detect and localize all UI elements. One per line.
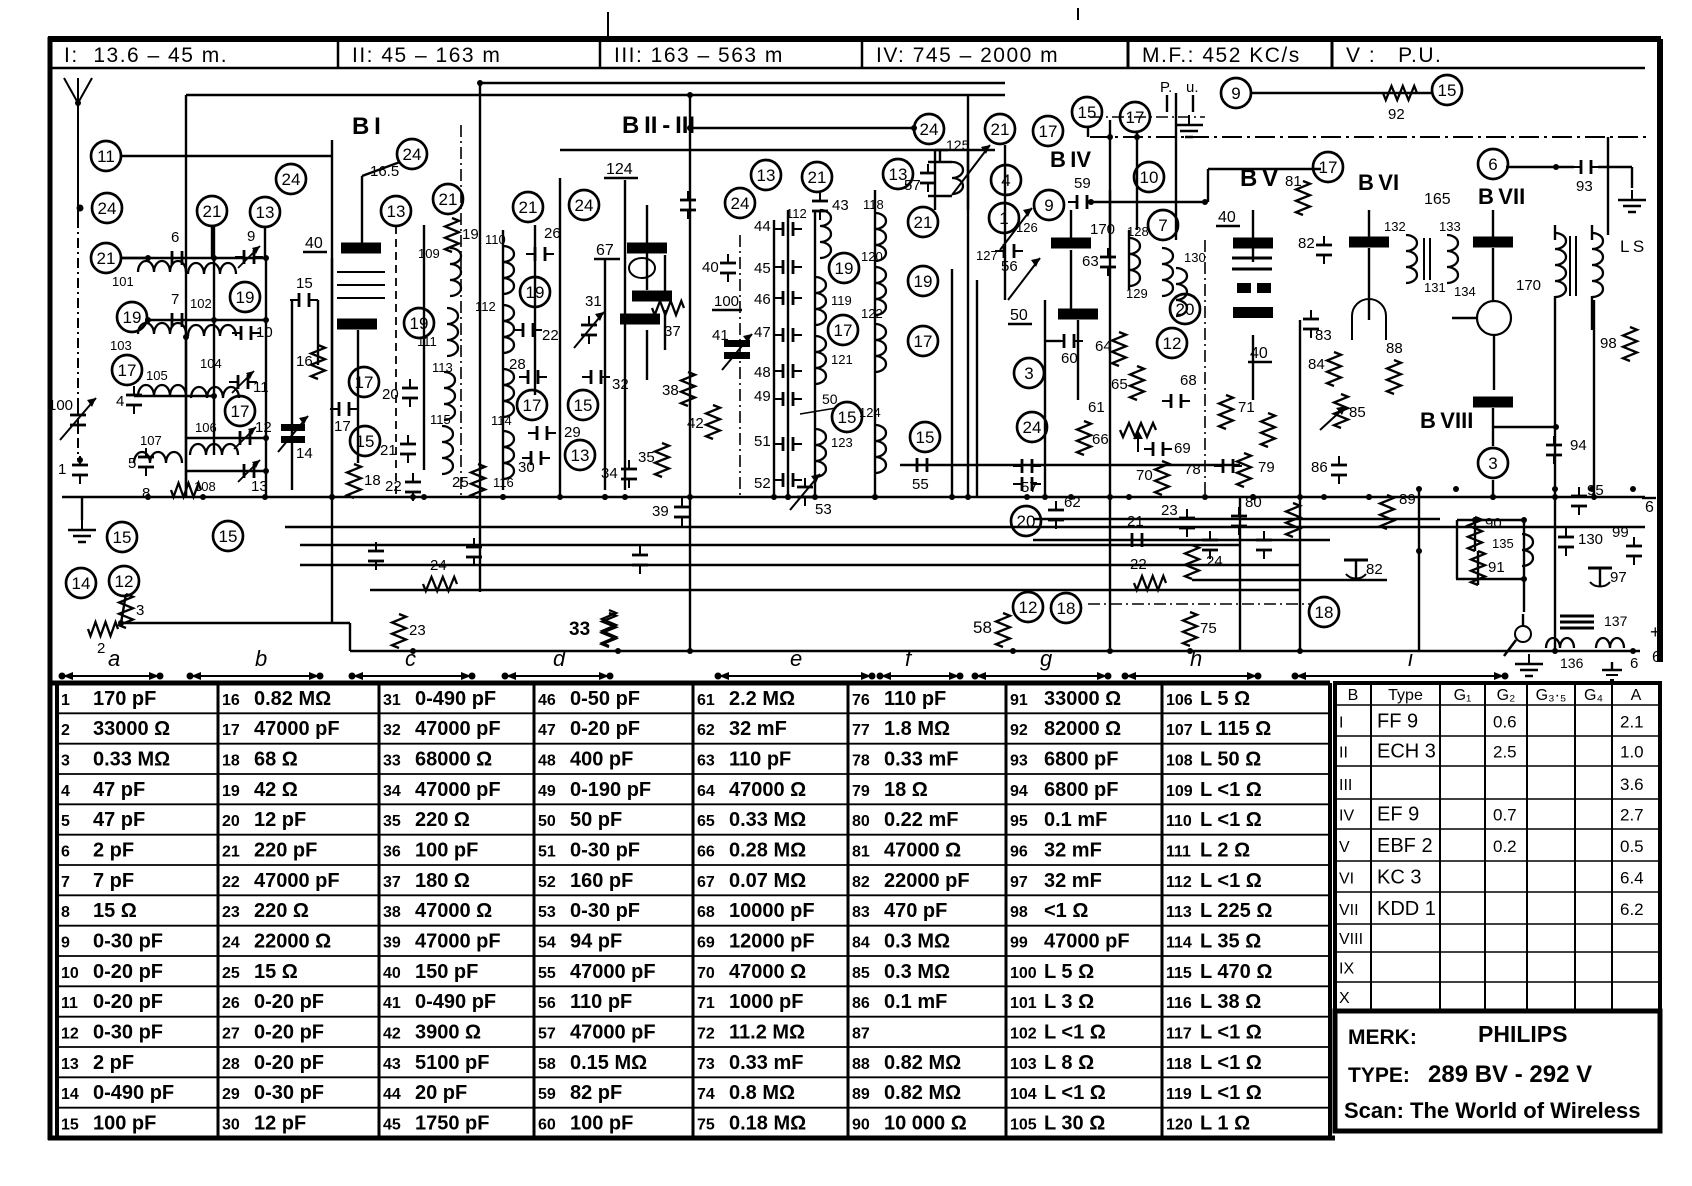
svg-text:84: 84 bbox=[1308, 356, 1325, 373]
svg-text:58: 58 bbox=[973, 618, 992, 637]
svg-text:132: 132 bbox=[1384, 219, 1406, 234]
svg-text:VIII: VIII bbox=[1339, 931, 1363, 948]
svg-text:65: 65 bbox=[697, 813, 715, 830]
svg-text:15: 15 bbox=[574, 396, 593, 415]
svg-text:0.3 MΩ: 0.3 MΩ bbox=[884, 961, 950, 983]
svg-text:48: 48 bbox=[754, 364, 771, 381]
svg-text:18: 18 bbox=[364, 472, 381, 489]
svg-text:V: V bbox=[1339, 839, 1350, 856]
svg-text:19: 19 bbox=[222, 783, 240, 800]
svg-text:33000 Ω: 33000 Ω bbox=[1044, 688, 1121, 710]
svg-text:38: 38 bbox=[383, 904, 401, 921]
svg-text:26: 26 bbox=[222, 995, 240, 1012]
svg-text:L 2 Ω: L 2 Ω bbox=[1200, 840, 1250, 862]
svg-text:101: 101 bbox=[1010, 995, 1037, 1012]
svg-text:6: 6 bbox=[61, 844, 70, 861]
svg-text:47000 pF: 47000 pF bbox=[1044, 931, 1130, 953]
svg-text:47000 Ω: 47000 Ω bbox=[415, 900, 492, 922]
svg-text:90: 90 bbox=[1485, 515, 1502, 532]
svg-text:22: 22 bbox=[1130, 556, 1147, 573]
svg-text:180 Ω: 180 Ω bbox=[415, 870, 470, 892]
svg-text:24: 24 bbox=[282, 170, 301, 189]
svg-text:76: 76 bbox=[852, 692, 870, 709]
svg-text:85: 85 bbox=[852, 965, 870, 982]
svg-text:0.33 MΩ: 0.33 MΩ bbox=[729, 809, 806, 831]
svg-text:99: 99 bbox=[1010, 935, 1028, 952]
svg-text:20: 20 bbox=[1017, 512, 1036, 531]
svg-text:0-20 pF: 0-20 pF bbox=[254, 1022, 324, 1044]
svg-text:24: 24 bbox=[430, 557, 447, 574]
svg-text:18: 18 bbox=[1315, 603, 1334, 622]
svg-text:45: 45 bbox=[383, 1117, 401, 1134]
svg-text:87: 87 bbox=[852, 1026, 870, 1043]
svg-text:3: 3 bbox=[136, 602, 144, 619]
svg-text:33: 33 bbox=[383, 753, 401, 770]
svg-text:65: 65 bbox=[1111, 376, 1128, 393]
svg-text:III: III bbox=[1339, 777, 1352, 794]
svg-text:11: 11 bbox=[97, 147, 115, 166]
svg-text:13: 13 bbox=[61, 1056, 79, 1073]
svg-text:B: B bbox=[1348, 687, 1359, 704]
svg-text:4: 4 bbox=[116, 393, 124, 410]
svg-text:TYPE:: TYPE: bbox=[1348, 1064, 1410, 1087]
svg-text:47000 pF: 47000 pF bbox=[570, 1022, 656, 1044]
svg-text:III: 163 – 563 m: III: 163 – 563 m bbox=[614, 44, 784, 67]
svg-text:47000 pF: 47000 pF bbox=[254, 718, 340, 740]
svg-text:110 pF: 110 pF bbox=[884, 688, 946, 710]
svg-text:0-50 pF: 0-50 pF bbox=[570, 688, 640, 710]
svg-text:71: 71 bbox=[697, 995, 715, 1012]
svg-text:7: 7 bbox=[61, 874, 70, 891]
svg-text:+: + bbox=[1650, 622, 1661, 642]
svg-text:57: 57 bbox=[538, 1026, 556, 1043]
svg-text:29: 29 bbox=[564, 424, 581, 441]
svg-text:54: 54 bbox=[538, 935, 556, 952]
svg-text:9: 9 bbox=[1231, 84, 1240, 103]
svg-text:86: 86 bbox=[1311, 459, 1328, 476]
svg-text:118: 118 bbox=[863, 197, 884, 212]
svg-text:130: 130 bbox=[1578, 531, 1603, 548]
svg-text:21: 21 bbox=[222, 844, 240, 861]
svg-text:17: 17 bbox=[1319, 158, 1338, 177]
svg-text:24: 24 bbox=[222, 935, 240, 952]
svg-text:17: 17 bbox=[222, 722, 240, 739]
svg-text:L <1 Ω: L <1 Ω bbox=[1044, 1022, 1106, 1044]
svg-text:85: 85 bbox=[1349, 404, 1366, 421]
svg-text:289 BV - 292 V: 289 BV - 292 V bbox=[1428, 1061, 1592, 1088]
svg-text:31: 31 bbox=[585, 293, 602, 310]
svg-text:17: 17 bbox=[834, 321, 853, 340]
svg-text:110 pF: 110 pF bbox=[729, 749, 791, 771]
svg-text:M.F.: 452 KC/s: M.F.: 452 KC/s bbox=[1142, 44, 1301, 67]
svg-text:50: 50 bbox=[538, 813, 556, 830]
svg-text:1000 pF: 1000 pF bbox=[729, 991, 803, 1013]
svg-text:8: 8 bbox=[61, 904, 70, 921]
svg-text:71: 71 bbox=[1238, 399, 1255, 416]
svg-text:93: 93 bbox=[1010, 753, 1028, 770]
svg-text:112: 112 bbox=[1166, 874, 1192, 891]
svg-text:112: 112 bbox=[475, 299, 496, 314]
svg-text:12: 12 bbox=[61, 1026, 79, 1043]
svg-text:53: 53 bbox=[815, 501, 832, 518]
svg-text:82: 82 bbox=[852, 874, 870, 891]
svg-text:78: 78 bbox=[852, 753, 870, 770]
svg-text:66: 66 bbox=[1092, 431, 1109, 448]
svg-text:47000 Ω: 47000 Ω bbox=[729, 961, 806, 983]
svg-text:6: 6 bbox=[1630, 655, 1638, 672]
svg-text:64: 64 bbox=[697, 783, 715, 800]
svg-text:47 pF: 47 pF bbox=[93, 809, 145, 831]
svg-text:97: 97 bbox=[1610, 569, 1627, 586]
svg-text:15: 15 bbox=[1438, 81, 1457, 100]
svg-text:93: 93 bbox=[1576, 178, 1593, 195]
svg-text:131: 131 bbox=[1424, 280, 1446, 295]
svg-text:97: 97 bbox=[1010, 874, 1028, 891]
svg-text:30: 30 bbox=[518, 459, 535, 476]
svg-text:L 225 Ω: L 225 Ω bbox=[1200, 900, 1272, 922]
svg-text:17: 17 bbox=[523, 396, 542, 415]
svg-text:61: 61 bbox=[1088, 399, 1105, 416]
svg-text:48: 48 bbox=[538, 753, 556, 770]
svg-text:15 Ω: 15 Ω bbox=[254, 961, 298, 983]
svg-text:10: 10 bbox=[256, 324, 273, 341]
svg-text:12 pF: 12 pF bbox=[254, 1113, 306, 1135]
svg-text:14: 14 bbox=[296, 445, 313, 462]
svg-text:19: 19 bbox=[410, 314, 429, 333]
svg-text:17: 17 bbox=[231, 402, 250, 421]
svg-text:24: 24 bbox=[403, 145, 422, 164]
svg-text:3900 Ω: 3900 Ω bbox=[415, 1022, 481, 1044]
svg-text:1.8 MΩ: 1.8 MΩ bbox=[884, 718, 950, 740]
svg-text:0.33 mF: 0.33 mF bbox=[884, 749, 958, 771]
svg-text:2.1: 2.1 bbox=[1620, 712, 1644, 731]
svg-text:1750 pF: 1750 pF bbox=[415, 1113, 489, 1135]
svg-text:0-490 pF: 0-490 pF bbox=[415, 688, 496, 710]
svg-text:16: 16 bbox=[296, 353, 313, 370]
svg-text:74: 74 bbox=[697, 1086, 715, 1103]
svg-text:53: 53 bbox=[538, 904, 556, 921]
svg-text:28: 28 bbox=[509, 356, 526, 373]
svg-text:6: 6 bbox=[171, 229, 179, 246]
svg-text:100: 100 bbox=[1010, 965, 1037, 982]
svg-text:15 Ω: 15 Ω bbox=[93, 900, 137, 922]
svg-text:<1 Ω: <1 Ω bbox=[1044, 900, 1088, 922]
svg-text:75: 75 bbox=[1200, 620, 1217, 637]
svg-text:L <1 Ω: L <1 Ω bbox=[1200, 809, 1262, 831]
svg-text:116: 116 bbox=[1166, 995, 1192, 1012]
svg-text:21: 21 bbox=[380, 442, 397, 459]
svg-text:75: 75 bbox=[697, 1117, 715, 1134]
svg-text:4: 4 bbox=[1001, 171, 1010, 190]
svg-text:83: 83 bbox=[1315, 327, 1332, 344]
svg-text:0.07 MΩ: 0.07 MΩ bbox=[729, 870, 806, 892]
svg-text:51: 51 bbox=[754, 433, 771, 450]
svg-text:57: 57 bbox=[904, 177, 921, 194]
svg-text:15: 15 bbox=[113, 528, 132, 547]
svg-text:33: 33 bbox=[569, 619, 590, 640]
svg-text:83: 83 bbox=[852, 904, 870, 921]
svg-text:55: 55 bbox=[912, 476, 929, 493]
svg-text:32 mF: 32 mF bbox=[1044, 840, 1102, 862]
svg-text:0.3 MΩ: 0.3 MΩ bbox=[884, 931, 950, 953]
svg-text:21: 21 bbox=[808, 168, 827, 187]
svg-text:0-490 pF: 0-490 pF bbox=[93, 1082, 174, 1104]
svg-text:6: 6 bbox=[1652, 649, 1661, 666]
svg-text:13: 13 bbox=[757, 166, 776, 185]
svg-text:II: II bbox=[1339, 745, 1348, 762]
svg-text:0.18 MΩ: 0.18 MΩ bbox=[729, 1113, 806, 1135]
svg-text:PHILIPS: PHILIPS bbox=[1478, 1021, 1567, 1047]
svg-text:18 Ω: 18 Ω bbox=[884, 779, 928, 801]
svg-text:127: 127 bbox=[976, 248, 998, 263]
svg-text:101: 101 bbox=[112, 274, 134, 289]
svg-text:L 5 Ω: L 5 Ω bbox=[1200, 688, 1250, 710]
svg-text:123: 123 bbox=[831, 435, 853, 450]
svg-text:82: 82 bbox=[1366, 561, 1383, 578]
svg-text:G₁: G₁ bbox=[1454, 687, 1472, 704]
svg-text:92: 92 bbox=[1388, 106, 1405, 123]
svg-text:119: 119 bbox=[831, 293, 852, 308]
svg-text:a: a bbox=[108, 646, 120, 671]
svg-text:11.2 MΩ: 11.2 MΩ bbox=[729, 1022, 805, 1044]
svg-text:70: 70 bbox=[697, 965, 715, 982]
svg-text:100 pF: 100 pF bbox=[570, 1113, 633, 1135]
svg-text:66: 66 bbox=[697, 844, 715, 861]
svg-text:VII: VII bbox=[1339, 902, 1359, 919]
svg-text:98: 98 bbox=[1010, 904, 1028, 921]
svg-text:39: 39 bbox=[652, 503, 669, 520]
svg-text:0.28 MΩ: 0.28 MΩ bbox=[729, 840, 806, 862]
svg-text:9: 9 bbox=[247, 228, 255, 245]
svg-text:1: 1 bbox=[61, 692, 70, 709]
svg-text:L 3 Ω: L 3 Ω bbox=[1044, 991, 1094, 1013]
svg-text:109: 109 bbox=[1166, 783, 1193, 800]
svg-text:79: 79 bbox=[852, 783, 870, 800]
svg-text:22000 Ω: 22000 Ω bbox=[254, 931, 331, 953]
svg-text:6: 6 bbox=[1488, 155, 1497, 174]
svg-text:47000 pF: 47000 pF bbox=[415, 931, 501, 953]
svg-text:G₃·₅: G₃·₅ bbox=[1536, 687, 1567, 704]
svg-text:58: 58 bbox=[538, 1056, 556, 1073]
svg-text:47: 47 bbox=[538, 722, 556, 739]
svg-text:55: 55 bbox=[538, 965, 556, 982]
svg-text:B VII: B VII bbox=[1478, 184, 1525, 209]
svg-text:124: 124 bbox=[606, 161, 633, 178]
svg-text:L 8 Ω: L 8 Ω bbox=[1044, 1052, 1094, 1074]
svg-text:46: 46 bbox=[754, 291, 771, 308]
svg-text:67: 67 bbox=[596, 242, 614, 259]
svg-text:IX: IX bbox=[1339, 961, 1354, 978]
svg-text:2.5: 2.5 bbox=[1493, 743, 1517, 762]
svg-text:P.: P. bbox=[1160, 79, 1172, 96]
svg-text:91: 91 bbox=[1488, 559, 1505, 576]
svg-text:ECH 3: ECH 3 bbox=[1377, 741, 1436, 763]
svg-text:L <1 Ω: L <1 Ω bbox=[1200, 870, 1262, 892]
svg-text:0-20 pF: 0-20 pF bbox=[254, 1052, 324, 1074]
svg-text:7 pF: 7 pF bbox=[93, 870, 134, 892]
svg-text:68 Ω: 68 Ω bbox=[254, 749, 298, 771]
svg-text:10: 10 bbox=[61, 965, 79, 982]
svg-text:L 35 Ω: L 35 Ω bbox=[1200, 931, 1261, 953]
svg-text:IV: 745 – 2000 m: IV: 745 – 2000 m bbox=[876, 44, 1059, 67]
svg-text:133: 133 bbox=[1439, 219, 1461, 234]
svg-text:34: 34 bbox=[383, 783, 401, 800]
svg-text:37: 37 bbox=[383, 874, 401, 891]
svg-text:23: 23 bbox=[1161, 502, 1178, 519]
svg-text:94 pF: 94 pF bbox=[570, 931, 622, 953]
svg-text:0.2: 0.2 bbox=[1493, 837, 1517, 856]
svg-text:I: 13.6 – 45 m.: I: 13.6 – 45 m. bbox=[64, 44, 228, 67]
svg-text:I: I bbox=[1339, 714, 1343, 731]
svg-text:h: h bbox=[1190, 646, 1202, 671]
svg-text:6: 6 bbox=[1645, 499, 1654, 516]
svg-text:47: 47 bbox=[754, 324, 771, 341]
svg-text:107: 107 bbox=[1166, 722, 1193, 739]
svg-text:47000 pF: 47000 pF bbox=[570, 961, 656, 983]
svg-text:96: 96 bbox=[1010, 844, 1028, 861]
svg-text:22000 pF: 22000 pF bbox=[884, 870, 970, 892]
svg-text:21: 21 bbox=[1127, 513, 1144, 530]
svg-text:31: 31 bbox=[383, 692, 401, 709]
svg-text:2.7: 2.7 bbox=[1620, 806, 1644, 825]
svg-text:6.2: 6.2 bbox=[1620, 900, 1644, 919]
svg-text:c: c bbox=[405, 646, 416, 671]
svg-text:e: e bbox=[790, 646, 802, 671]
svg-text:56: 56 bbox=[1001, 258, 1018, 275]
svg-text:25: 25 bbox=[452, 474, 469, 491]
svg-text:6.4: 6.4 bbox=[1620, 868, 1644, 887]
svg-text:L <1 Ω: L <1 Ω bbox=[1200, 779, 1262, 801]
svg-text:40: 40 bbox=[305, 235, 323, 252]
svg-text:170: 170 bbox=[1090, 221, 1115, 238]
svg-text:10000 pF: 10000 pF bbox=[729, 900, 815, 922]
svg-text:68: 68 bbox=[1180, 372, 1197, 389]
svg-text:12 pF: 12 pF bbox=[254, 809, 306, 831]
svg-text:B VIII: B VIII bbox=[1420, 408, 1473, 433]
svg-text:106: 106 bbox=[1166, 692, 1193, 709]
svg-text:3: 3 bbox=[1488, 454, 1497, 473]
svg-text:29: 29 bbox=[222, 1086, 240, 1103]
svg-text:47000 pF: 47000 pF bbox=[254, 870, 340, 892]
svg-text:0-490 pF: 0-490 pF bbox=[415, 991, 496, 1013]
svg-text:57: 57 bbox=[1021, 479, 1038, 496]
svg-text:68: 68 bbox=[697, 904, 715, 921]
svg-text:23: 23 bbox=[222, 904, 240, 921]
svg-text:104: 104 bbox=[1010, 1086, 1037, 1103]
svg-text:47 pF: 47 pF bbox=[93, 779, 145, 801]
svg-text:86: 86 bbox=[852, 995, 870, 1012]
svg-text:KDD 1: KDD 1 bbox=[1377, 898, 1436, 920]
svg-text:79: 79 bbox=[1258, 459, 1275, 476]
svg-text:15: 15 bbox=[296, 275, 313, 292]
svg-text:0.6: 0.6 bbox=[1493, 712, 1517, 731]
svg-text:49: 49 bbox=[754, 388, 771, 405]
svg-text:22: 22 bbox=[385, 478, 402, 495]
svg-text:91: 91 bbox=[1010, 692, 1028, 709]
svg-text:40: 40 bbox=[383, 965, 401, 982]
svg-text:0-30 pF: 0-30 pF bbox=[93, 1022, 163, 1044]
svg-text:160 pF: 160 pF bbox=[570, 870, 633, 892]
svg-text:94: 94 bbox=[1010, 783, 1028, 800]
svg-text:12: 12 bbox=[255, 419, 272, 436]
svg-text:119: 119 bbox=[1166, 1086, 1192, 1103]
svg-text:68000 Ω: 68000 Ω bbox=[415, 749, 492, 771]
svg-text:103: 103 bbox=[1010, 1056, 1037, 1073]
svg-text:88: 88 bbox=[1386, 340, 1403, 357]
svg-text:107: 107 bbox=[140, 433, 162, 448]
svg-text:A: A bbox=[1631, 687, 1642, 704]
svg-text:b: b bbox=[255, 646, 267, 671]
svg-text:10 000 Ω: 10 000 Ω bbox=[884, 1113, 967, 1135]
svg-text:47000 Ω: 47000 Ω bbox=[884, 840, 961, 862]
svg-text:G₂: G₂ bbox=[1497, 687, 1516, 704]
svg-text:130: 130 bbox=[1184, 250, 1206, 265]
svg-text:EBF 2: EBF 2 bbox=[1377, 835, 1433, 857]
svg-text:46: 46 bbox=[538, 692, 556, 709]
svg-text:47000 pF: 47000 pF bbox=[415, 779, 501, 801]
svg-text:3: 3 bbox=[61, 753, 70, 770]
svg-text:108: 108 bbox=[1166, 753, 1193, 770]
svg-text:5: 5 bbox=[61, 813, 70, 830]
svg-text:2 pF: 2 pF bbox=[93, 1052, 134, 1074]
svg-text:135: 135 bbox=[1492, 536, 1514, 551]
svg-text:5: 5 bbox=[128, 455, 136, 472]
svg-text:L 50 Ω: L 50 Ω bbox=[1200, 749, 1261, 771]
svg-text:61: 61 bbox=[697, 692, 715, 709]
svg-text:15: 15 bbox=[219, 527, 238, 546]
svg-text:110: 110 bbox=[1166, 813, 1192, 830]
svg-text:0.82 MΩ: 0.82 MΩ bbox=[884, 1052, 961, 1074]
svg-text:114: 114 bbox=[491, 413, 512, 428]
svg-text:121: 121 bbox=[831, 352, 853, 367]
svg-text:95: 95 bbox=[1010, 813, 1028, 830]
svg-text:17: 17 bbox=[1039, 122, 1058, 141]
svg-text:36: 36 bbox=[383, 844, 401, 861]
svg-text:II: 45 – 163 m: II: 45 – 163 m bbox=[352, 44, 501, 67]
svg-text:0-20 pF: 0-20 pF bbox=[254, 991, 324, 1013]
svg-text:34: 34 bbox=[601, 465, 618, 482]
svg-text:81: 81 bbox=[852, 844, 870, 861]
svg-text:VI: VI bbox=[1339, 870, 1354, 887]
svg-text:63: 63 bbox=[1082, 253, 1099, 270]
svg-text:98: 98 bbox=[1600, 335, 1617, 352]
svg-text:220 Ω: 220 Ω bbox=[254, 900, 309, 922]
svg-text:117: 117 bbox=[1166, 1026, 1192, 1043]
svg-text:0.1 mF: 0.1 mF bbox=[884, 991, 947, 1013]
svg-text:105: 105 bbox=[146, 368, 168, 383]
svg-text:X: X bbox=[1339, 990, 1350, 1007]
svg-text:67: 67 bbox=[697, 874, 715, 891]
svg-text:113: 113 bbox=[1166, 904, 1192, 921]
svg-text:41: 41 bbox=[712, 327, 729, 344]
svg-text:KC 3: KC 3 bbox=[1377, 866, 1421, 888]
svg-text:6800 pF: 6800 pF bbox=[1044, 749, 1118, 771]
svg-text:12: 12 bbox=[1019, 598, 1038, 617]
svg-text:69: 69 bbox=[697, 935, 715, 952]
svg-text:42 Ω: 42 Ω bbox=[254, 779, 298, 801]
svg-text:0-20 pF: 0-20 pF bbox=[570, 718, 640, 740]
svg-text:39: 39 bbox=[383, 935, 401, 952]
svg-text:62: 62 bbox=[697, 722, 715, 739]
svg-text:0.8 MΩ: 0.8 MΩ bbox=[729, 1082, 795, 1104]
svg-text:88: 88 bbox=[852, 1056, 870, 1073]
svg-text:u.: u. bbox=[1186, 79, 1199, 96]
svg-text:25: 25 bbox=[222, 965, 240, 982]
svg-text:136: 136 bbox=[1560, 655, 1584, 671]
svg-text:19: 19 bbox=[835, 259, 854, 278]
svg-text:11: 11 bbox=[61, 995, 78, 1012]
svg-text:12: 12 bbox=[1163, 334, 1182, 353]
